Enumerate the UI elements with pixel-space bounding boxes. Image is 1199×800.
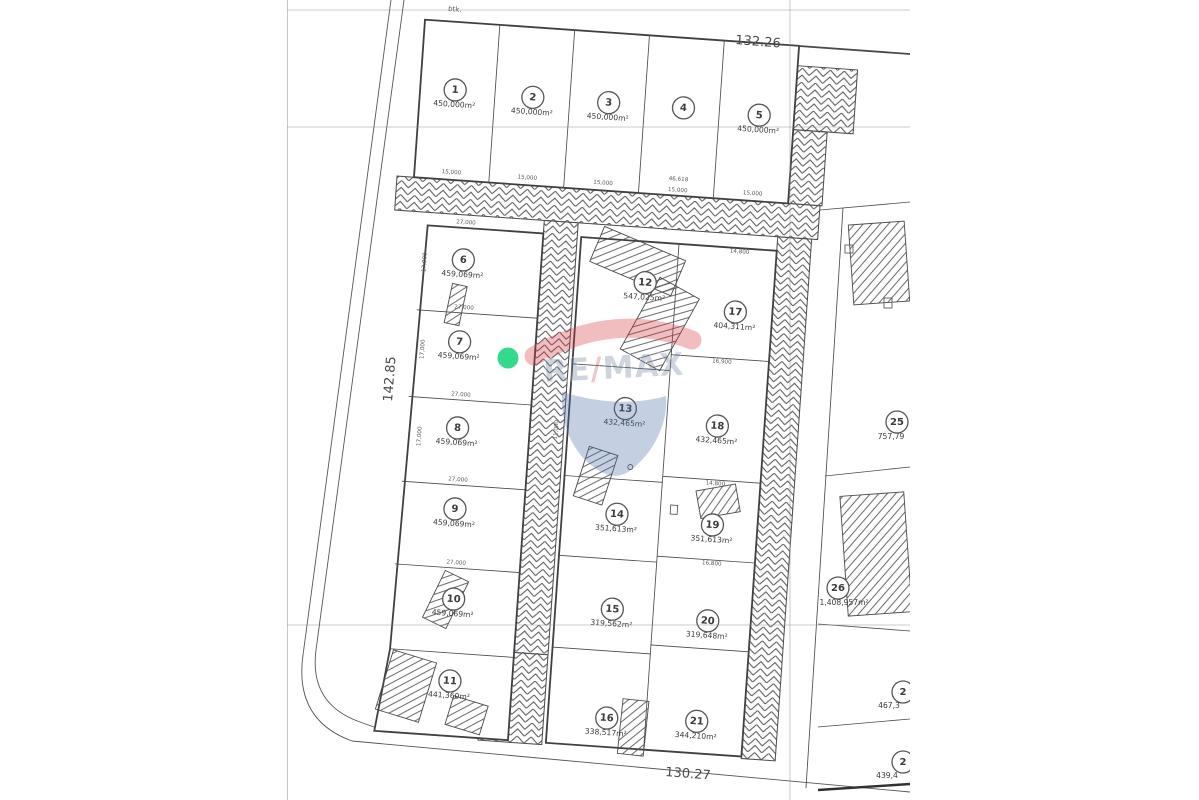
plot-area: 1,408,957m²: [819, 598, 868, 607]
plot-number: 17: [728, 307, 743, 319]
plot-number: 2: [900, 687, 907, 698]
main-block: 1450,000m² 2450,000m² 3450,000m² 4 5450,…: [358, 18, 859, 767]
plot-number: 20: [700, 615, 715, 627]
plot-number: 15: [605, 604, 620, 616]
plot-number: 14: [610, 509, 625, 521]
building-plot16: [617, 699, 649, 756]
plot-area: 757,79: [878, 432, 905, 441]
plot-partial-a: 2467,3: [878, 681, 914, 710]
dimension-bottom: 130.27: [665, 765, 712, 784]
plot-number: 21: [689, 716, 704, 728]
plot-area: 439,4: [876, 771, 898, 780]
corner-note: btk.: [448, 5, 462, 14]
plot-4: 4: [672, 96, 695, 119]
building-right-top: [848, 221, 909, 305]
remax-text: RE/MAX: [543, 347, 686, 390]
road-elbow-narrow: [788, 130, 827, 206]
location-marker: [498, 348, 519, 369]
plot-number: 25: [890, 417, 904, 428]
plot-number: 2: [900, 757, 907, 768]
plot-number: 4: [680, 103, 688, 114]
cadastral-plan: 1450,000m² 2450,000m² 3450,000m² 4 5450,…: [0, 0, 1199, 800]
plot-area: 467,3: [878, 701, 900, 710]
plot-number: 8: [454, 423, 462, 434]
plot-25: 25757,79: [878, 411, 908, 441]
plot-partial-b: 2439,4: [876, 751, 914, 780]
plot-number: 7: [456, 337, 464, 348]
plot-number: 16: [599, 713, 614, 725]
dimension-left: 142.85: [381, 356, 400, 403]
plot-number: 19: [705, 519, 720, 531]
plot-number: 18: [710, 421, 725, 433]
road-elbow-wide: [793, 66, 857, 134]
plot-number: 6: [459, 255, 467, 266]
plot-number: 5: [755, 110, 763, 121]
plot-number: 3: [605, 97, 613, 108]
dim-tick: 27,000: [456, 219, 476, 226]
plot-number: 12: [638, 277, 653, 289]
plot-number: 11: [443, 676, 458, 688]
plot-number: 9: [451, 504, 459, 515]
plot-number: 26: [831, 583, 845, 594]
plot-number: 1: [451, 85, 459, 96]
plot-number: 10: [446, 594, 461, 606]
plot-number: 2: [529, 92, 537, 103]
plan-drawing: 1450,000m² 2450,000m² 3450,000m² 4 5450,…: [0, 0, 1199, 800]
